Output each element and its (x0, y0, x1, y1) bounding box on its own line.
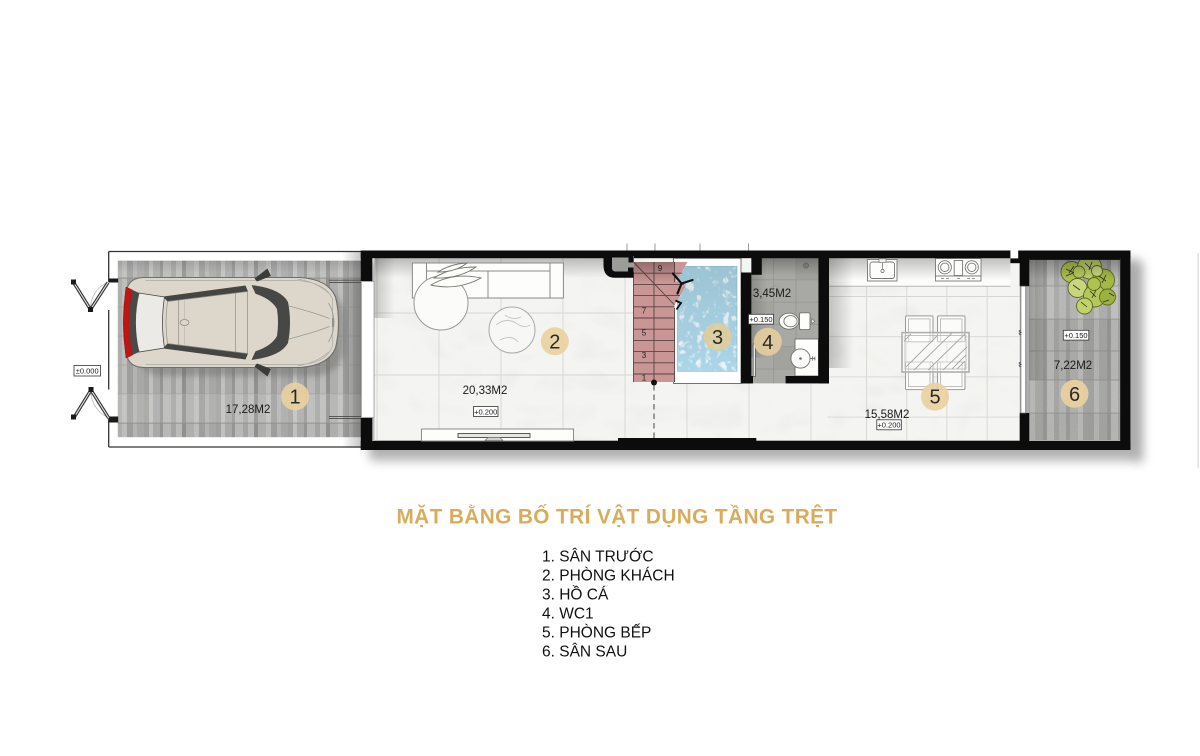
svg-text:5. PHÒNG BẾP: 5. PHÒNG BẾP (542, 625, 651, 642)
svg-text:2: 2 (549, 331, 560, 353)
svg-text:4: 4 (762, 332, 773, 354)
svg-text:+0.200: +0.200 (877, 421, 900, 430)
svg-text:1: 1 (642, 374, 647, 383)
svg-text:+0.200: +0.200 (474, 407, 497, 416)
svg-text:17,28M2: 17,28M2 (226, 404, 271, 416)
svg-text:1. SÂN TRƯỚC: 1. SÂN TRƯỚC (542, 549, 654, 566)
svg-text:5: 5 (642, 329, 647, 338)
svg-text:7,22M2: 7,22M2 (1054, 360, 1092, 372)
svg-text:±0.000: ±0.000 (76, 367, 99, 376)
svg-text:+0.150: +0.150 (749, 315, 772, 324)
svg-text:20,33M2: 20,33M2 (463, 385, 508, 397)
svg-text:6. SÂN SAU: 6. SÂN SAU (542, 644, 627, 661)
svg-text:+0.150: +0.150 (1064, 331, 1087, 340)
svg-text:3. HỒ CÁ: 3. HỒ CÁ (542, 586, 609, 604)
svg-text:2. PHÒNG KHÁCH: 2. PHÒNG KHÁCH (542, 568, 675, 585)
svg-text:1: 1 (289, 387, 300, 409)
svg-text:MẶT BẰNG BỐ TRÍ VẬT DỤNG TẦNG: MẶT BẰNG BỐ TRÍ VẬT DỤNG TẦNG TRỆT (396, 505, 837, 529)
svg-text:15,58M2: 15,58M2 (865, 409, 910, 421)
svg-text:3: 3 (642, 351, 647, 360)
svg-text:6: 6 (1069, 384, 1080, 406)
svg-text:5: 5 (929, 387, 940, 409)
svg-text:3: 3 (712, 327, 723, 349)
svg-text:7: 7 (642, 306, 647, 315)
svg-text:3,45M2: 3,45M2 (753, 288, 791, 300)
svg-text:4. WC1: 4. WC1 (542, 606, 594, 623)
